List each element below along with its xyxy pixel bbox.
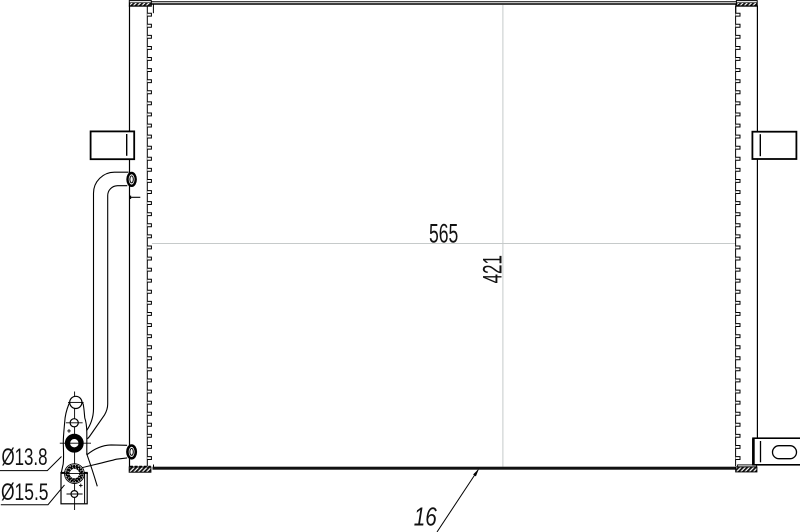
svg-text:Ø15.5: Ø15.5 xyxy=(1,479,49,506)
svg-text:421: 421 xyxy=(477,255,507,283)
svg-text:Ø13.8: Ø13.8 xyxy=(2,444,48,471)
svg-text:16: 16 xyxy=(414,502,437,532)
svg-text:565: 565 xyxy=(429,218,458,248)
